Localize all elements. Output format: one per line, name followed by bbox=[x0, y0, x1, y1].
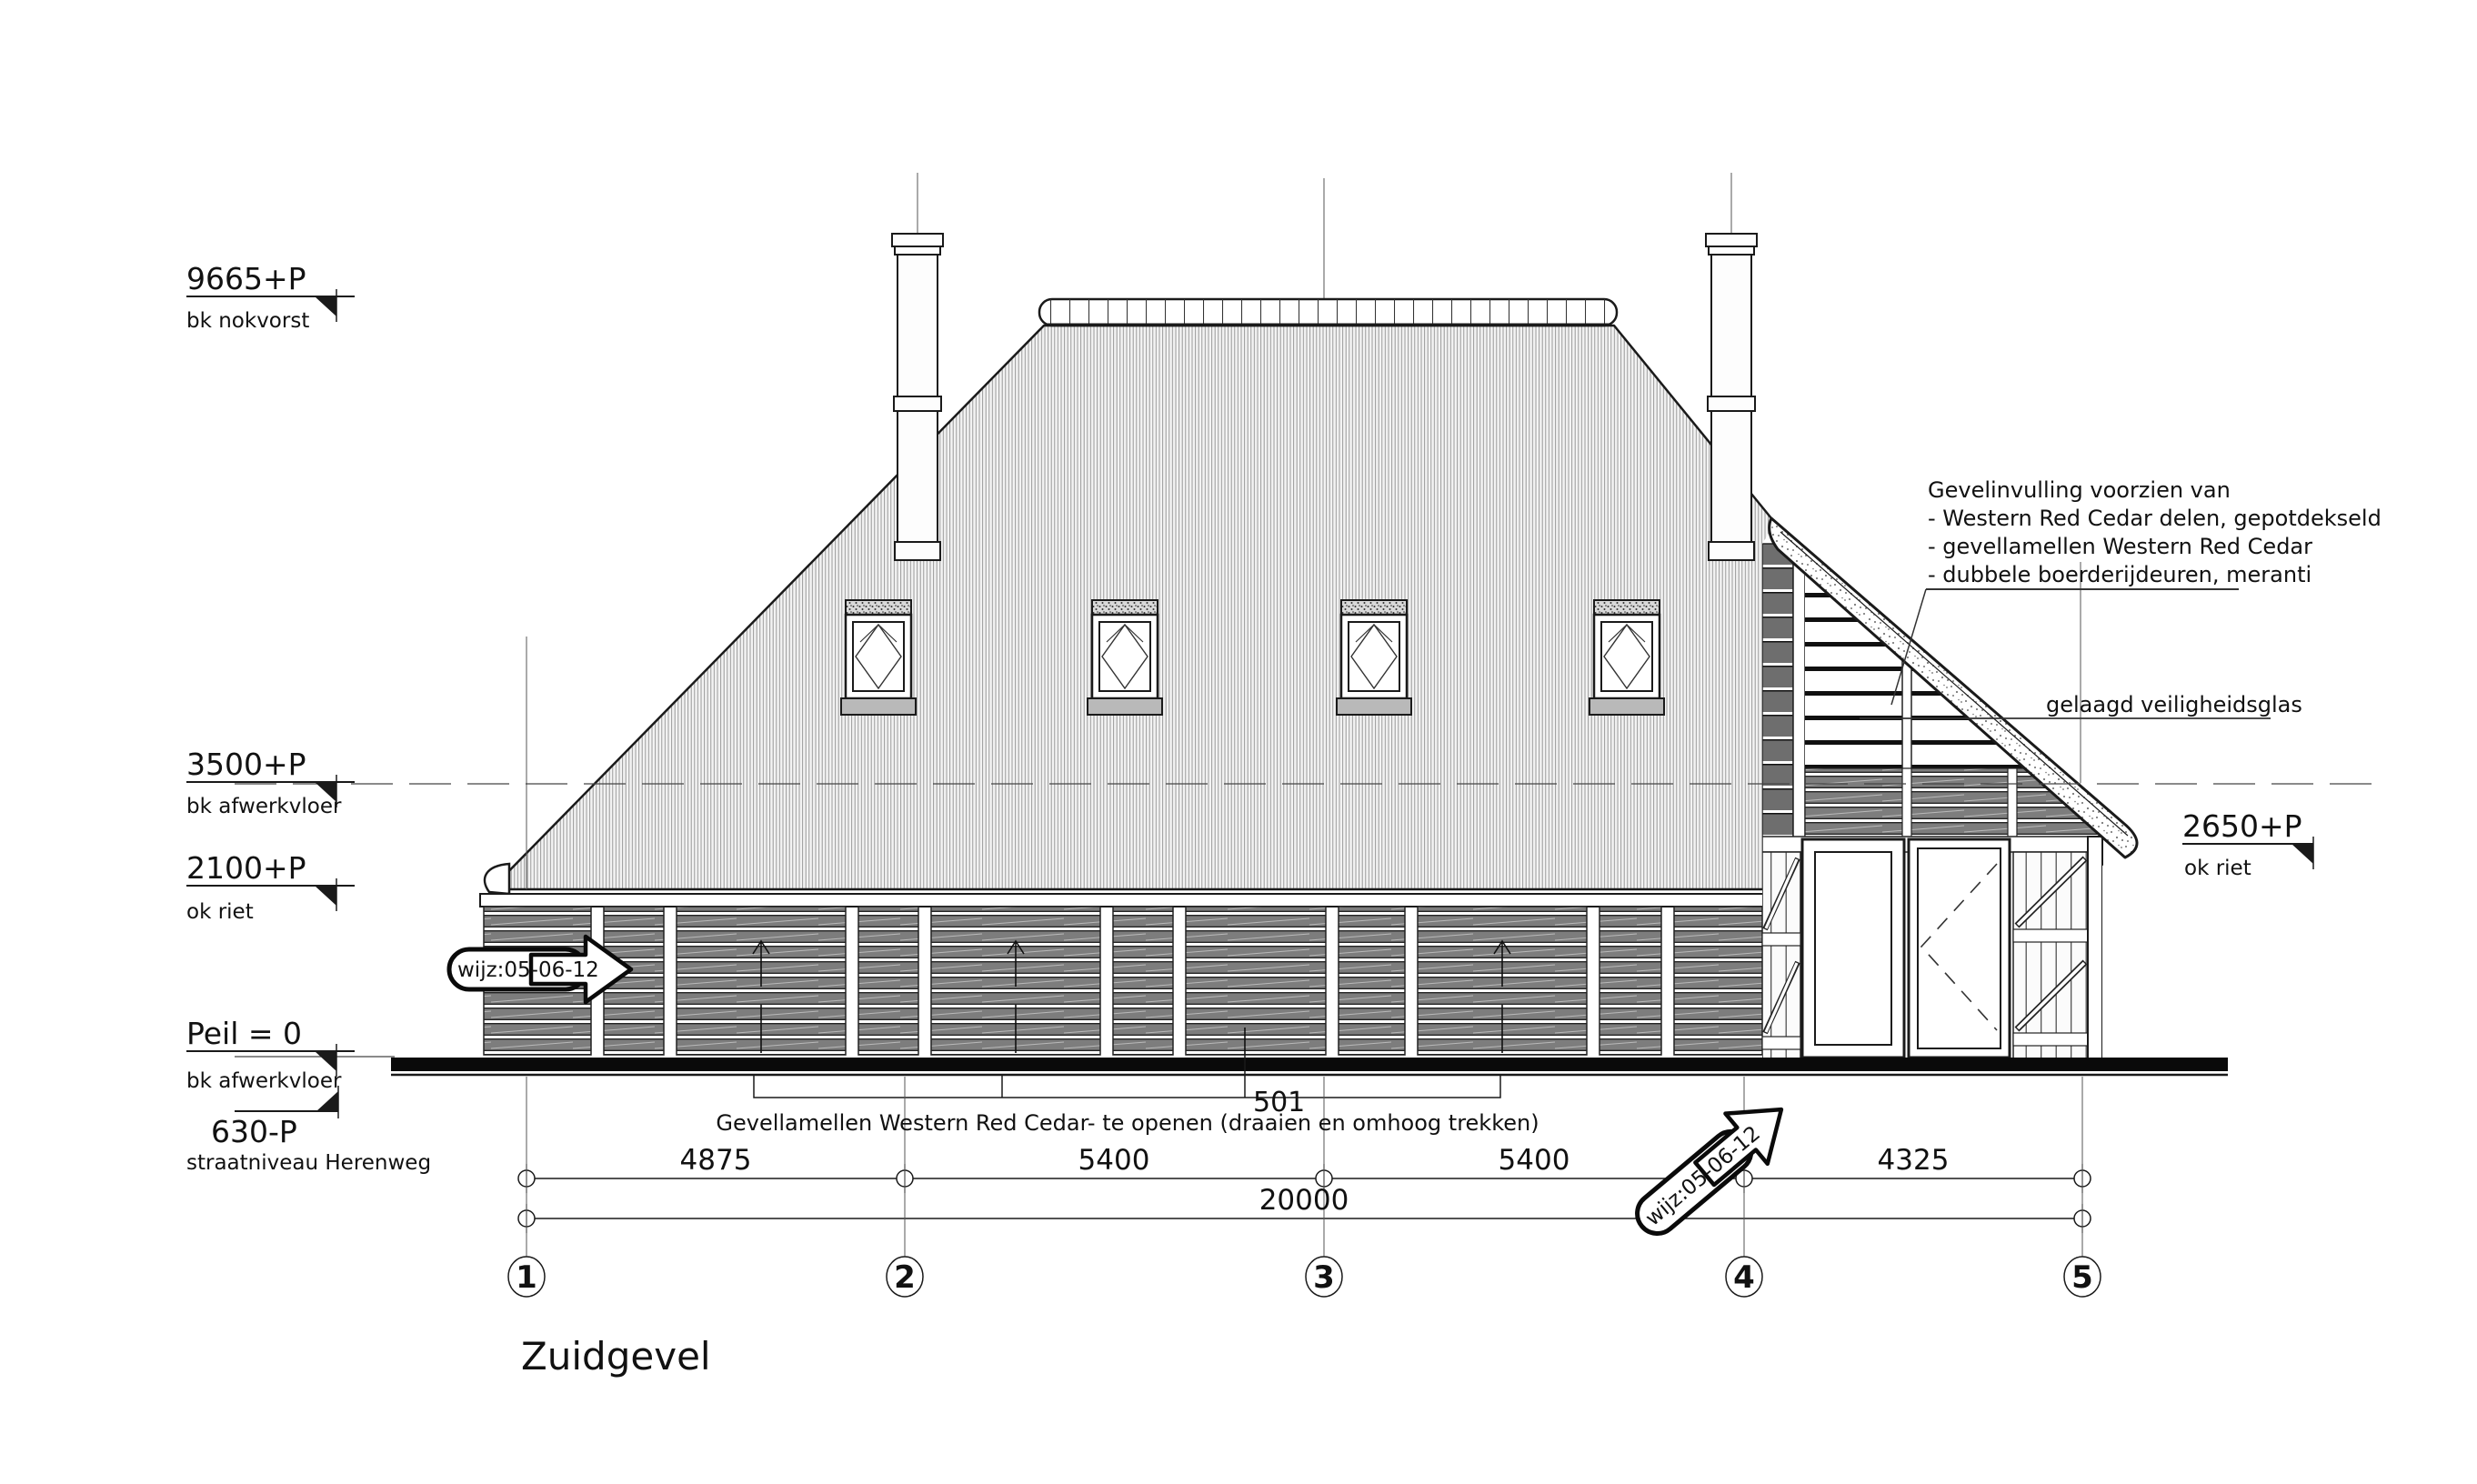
lamellen-caption: Gevellamellen Western Red Cedar- te open… bbox=[716, 1110, 1539, 1136]
grid-bubble-2-label: 2 bbox=[894, 1259, 916, 1296]
eave-fascia bbox=[480, 894, 1764, 907]
timber-panel-left bbox=[1762, 852, 1800, 1060]
gable-left-slat-band bbox=[1762, 544, 1793, 846]
note-text: gelaagd veiligheidsglas bbox=[2046, 692, 2302, 717]
corner-post bbox=[2088, 837, 2102, 1060]
level-value: 9665+P bbox=[186, 261, 306, 296]
barn-door-right bbox=[1909, 839, 2010, 1058]
level-value: 2100+P bbox=[186, 850, 306, 886]
dim-span-1-2: 4875 bbox=[680, 1144, 752, 1177]
dim-span-4-5: 4325 bbox=[1878, 1144, 1950, 1177]
grid-bubble-5-label: 5 bbox=[2071, 1259, 2093, 1296]
level-value: 3500+P bbox=[186, 747, 306, 782]
barn-door-left bbox=[1802, 839, 1904, 1058]
note-line: - Western Red Cedar delen, gepotdekseld bbox=[1928, 506, 2382, 531]
dim-total: 20000 bbox=[1259, 1184, 1349, 1217]
drawing-title: Zuidgevel bbox=[521, 1334, 711, 1379]
chimney-right bbox=[1706, 234, 1757, 560]
note-line: Gevelinvulling voorzien van bbox=[1928, 477, 2231, 503]
level-value: 630-P bbox=[211, 1114, 297, 1149]
south-elevation-sheet: 4875 5400 5400 4325 20000 1 2 3 4 5 9665… bbox=[0, 0, 2477, 1484]
level-value: 2650+P bbox=[2182, 808, 2302, 844]
note-line: - gevellamellen Western Red Cedar bbox=[1928, 534, 2312, 559]
roof-window bbox=[1337, 600, 1411, 715]
dim-span-2-3: 5400 bbox=[1078, 1144, 1150, 1177]
chimney-left bbox=[892, 234, 943, 560]
level-label: bk nokvorst bbox=[186, 309, 309, 333]
level-value: Peil = 0 bbox=[186, 1016, 302, 1051]
note-line: - dubbele boerderijdeuren, meranti bbox=[1928, 562, 2312, 587]
roof-window bbox=[1088, 600, 1162, 715]
timber-panel-right bbox=[2013, 852, 2090, 1060]
roof-window bbox=[1589, 600, 1664, 715]
level-label: bk afwerkvloer bbox=[186, 1069, 342, 1093]
south-elevation-drawing: 4875 5400 5400 4325 20000 1 2 3 4 5 9665… bbox=[0, 0, 2477, 1484]
level-label: ok riet bbox=[186, 900, 254, 924]
grid-bubble-4-label: 4 bbox=[1733, 1259, 1755, 1296]
grid-bubble-3-label: 3 bbox=[1313, 1259, 1335, 1296]
ridge-cap bbox=[1039, 299, 1617, 326]
grid-bubble-1-label: 1 bbox=[516, 1259, 537, 1296]
level-label: bk afwerkvloer bbox=[186, 795, 342, 818]
dim-span-3-4: 5400 bbox=[1499, 1144, 1570, 1177]
roof-window bbox=[841, 600, 916, 715]
level-label: ok riet bbox=[2184, 857, 2251, 880]
revision-stamp-label: wijz:05-06-12 bbox=[457, 958, 599, 982]
level-label: straatniveau Herenweg bbox=[186, 1151, 431, 1175]
